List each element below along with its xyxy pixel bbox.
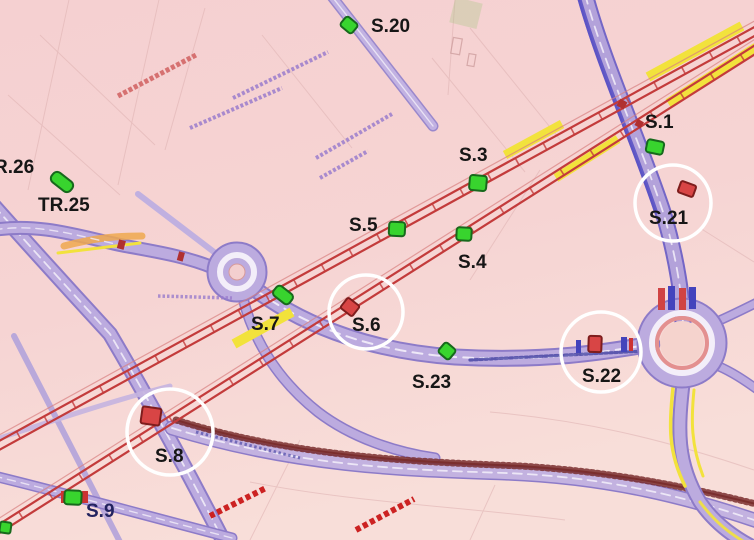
station-label-s7: S.7 — [251, 314, 280, 335]
station-label-s3: S.3 — [459, 145, 488, 166]
station-marker-s3[interactable] — [469, 175, 487, 191]
station-label-s21: S.21 — [649, 208, 689, 229]
station-label-s8: S.8 — [155, 446, 184, 467]
station-label-s6: S.6 — [352, 315, 381, 336]
station-label-s1: S.1 — [645, 112, 674, 133]
station-label-s20: S.20 — [371, 16, 410, 37]
station-label-s4: S.4 — [458, 252, 487, 273]
station-marker-s9[interactable] — [61, 490, 88, 505]
map-canvas: S.20 R.26 TR.25 S.3 S.5 S.4 S.7 S.6 S.23… — [0, 0, 754, 540]
station-label-s9: S.9 — [86, 501, 115, 522]
station-marker-s8[interactable] — [140, 406, 161, 425]
traffic-plan-map: S.20 R.26 TR.25 S.3 S.5 S.4 S.7 S.6 S.23… — [0, 0, 754, 540]
station-marker-s1[interactable] — [645, 139, 664, 155]
station-marker-s5[interactable] — [389, 222, 406, 237]
station-label-s23: S.23 — [412, 372, 451, 393]
station-marker-s4[interactable] — [456, 227, 472, 241]
station-label-s22: S.22 — [582, 366, 621, 387]
station-label-tr25: TR.25 — [38, 195, 90, 216]
station-marker-corner[interactable] — [0, 521, 12, 533]
roundabout-left — [208, 243, 266, 301]
station-label-r26: R.26 — [0, 157, 34, 178]
station-label-s5: S.5 — [349, 215, 378, 236]
